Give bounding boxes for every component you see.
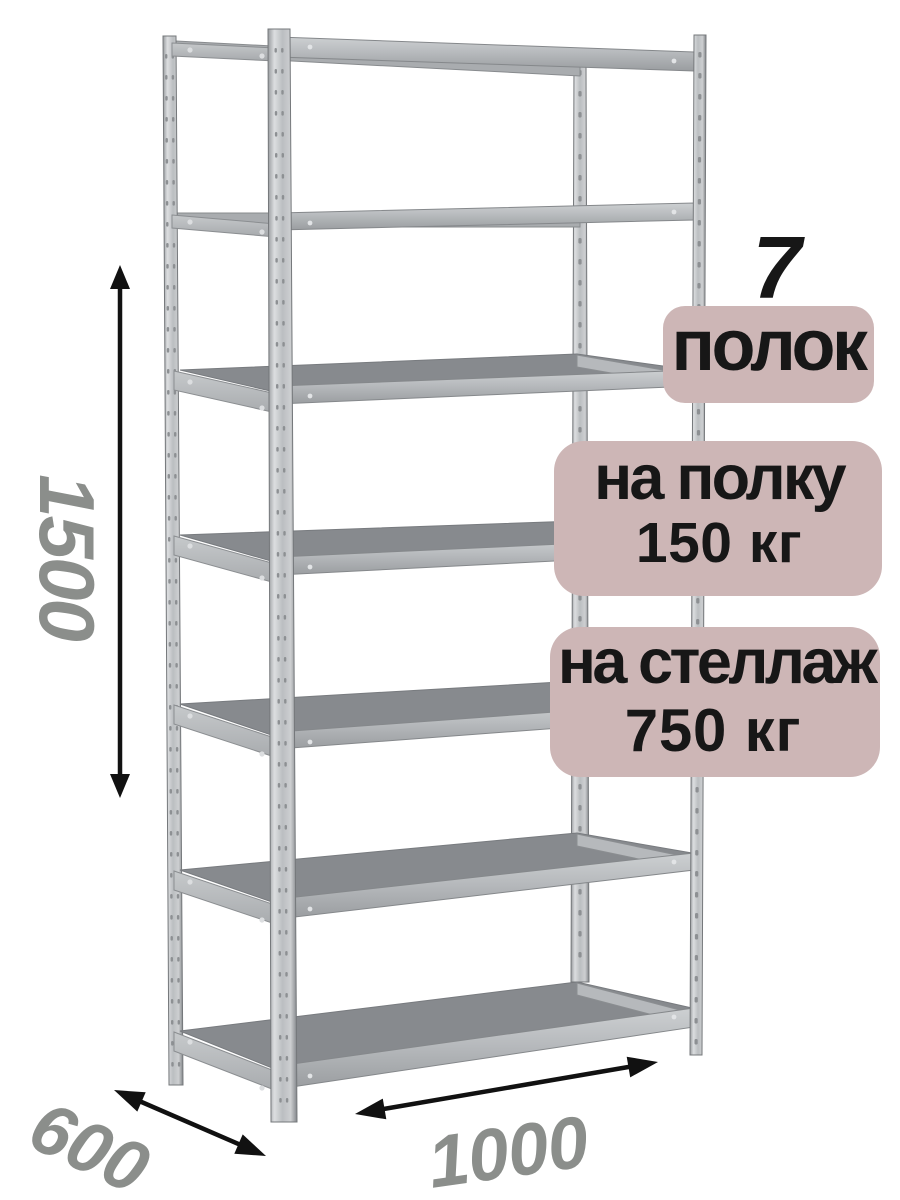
svg-text:750 кг: 750 кг	[625, 697, 802, 764]
svg-text:1500: 1500	[23, 474, 111, 641]
svg-text:на стеллаж: на стеллаж	[558, 627, 879, 697]
svg-text:полок: полок	[672, 306, 869, 386]
svg-text:7: 7	[753, 218, 806, 317]
svg-text:150 кг: 150 кг	[636, 511, 802, 575]
svg-text:на полку: на полку	[594, 443, 847, 513]
